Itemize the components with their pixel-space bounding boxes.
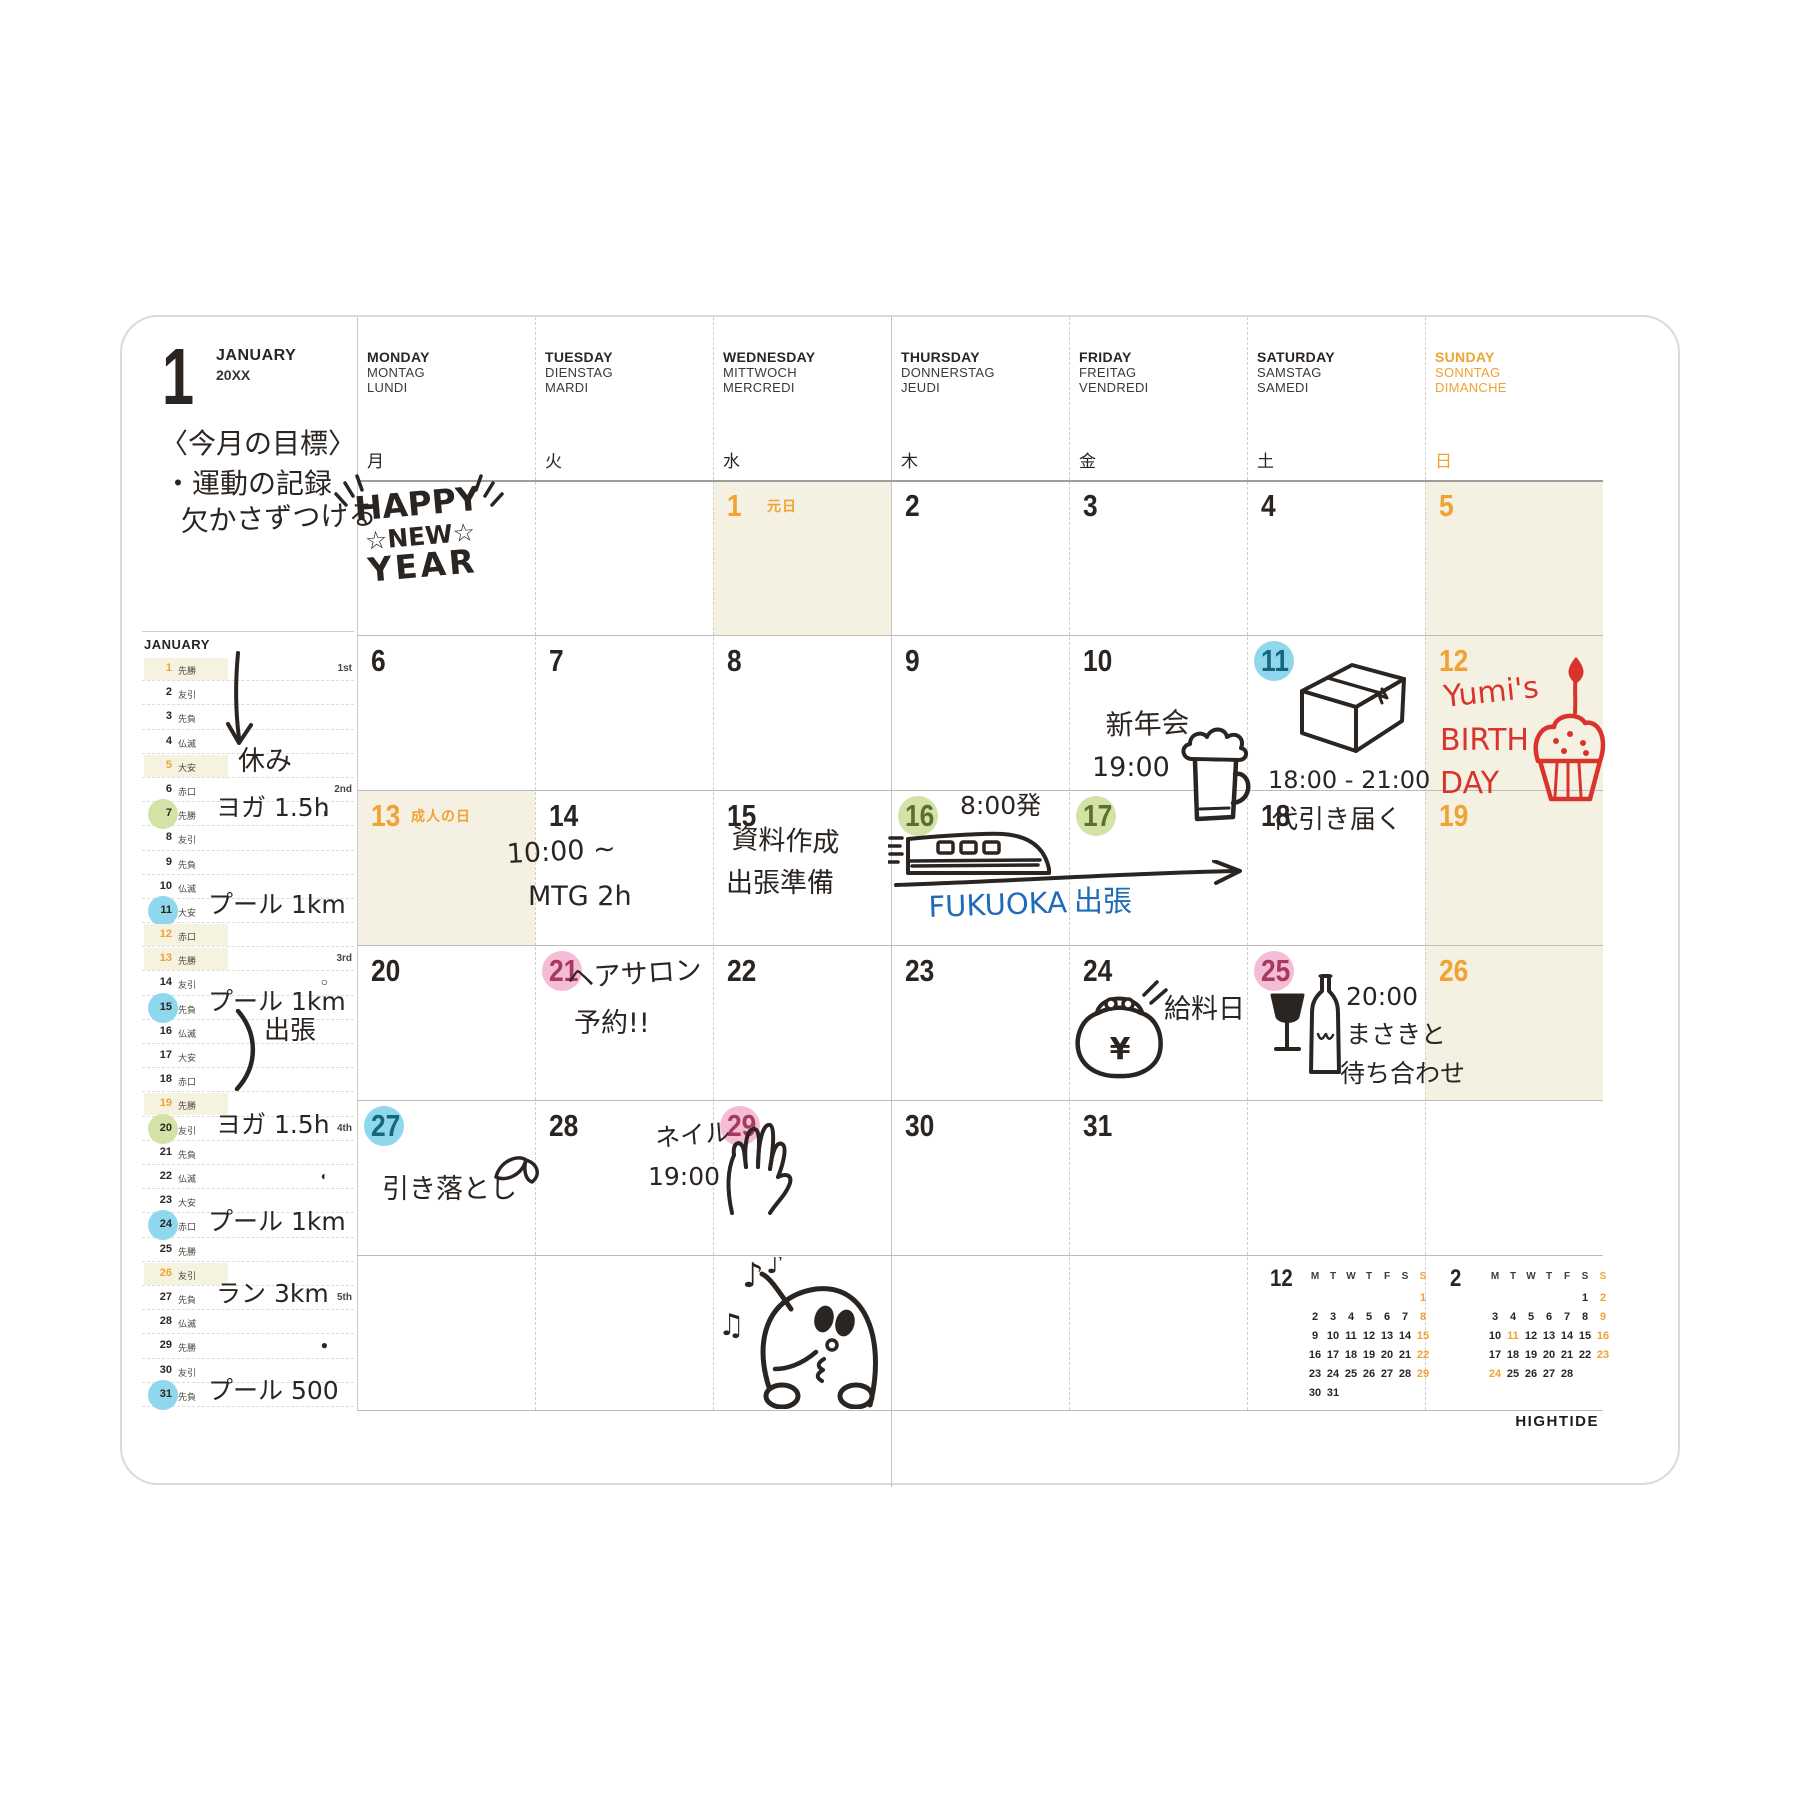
box-doodle [1294,653,1412,761]
sidebar-rokuyo-label: 友引 [178,1269,196,1282]
sidebar-date: 20 [146,1122,172,1134]
calendar-date-6: 6 [371,645,386,676]
sidebar-top-rule [142,631,354,632]
sidebar-date: 30 [146,1364,172,1376]
mini-calendar-date: 5 [1360,1311,1378,1323]
entry-mtg: MTG 2h [528,882,632,912]
calendar-date-10: 10 [1083,645,1112,676]
day-header-kanji: 金 [1079,447,1096,472]
sidebar-month-title: JANUARY [144,637,210,652]
holiday-name-label: 元日 [767,496,797,516]
sidebar-row-jan-9: 9先負 [142,851,354,875]
mini-calendar-date: 23 [1594,1349,1612,1361]
mini-calendar-day-letter: M [1306,1271,1324,1282]
day-header-line: SAMSTAG [1257,365,1427,380]
sidebar-rokuyo-label: 仏滅 [178,1172,196,1185]
sidebar-row-jan-13: 13先勝3rd [142,947,354,971]
sidebar-rokuyo-label: 赤口 [178,1075,196,1088]
sidebar-rokuyo-label: 先勝 [178,954,196,967]
sidebar-rokuyo-label: 先負 [178,1390,196,1403]
sidebar-rokuyo-label: 仏滅 [178,737,196,750]
sidebar-rokuyo-label: 仏滅 [178,1317,196,1330]
svg-text:♪: ♪ [766,1257,784,1280]
sidebar-rokuyo-label: 先負 [178,1003,196,1016]
brand-logo: HIGHTIDE [1515,1413,1599,1430]
sidebar-rokuyo-label: 赤口 [178,785,196,798]
mini-calendar-month-number: 2 [1450,1265,1461,1293]
sidebar-date: 27 [146,1291,172,1303]
entry-fukuoka-trip: 出張 [1074,886,1132,918]
sidebar-date: 25 [146,1243,172,1255]
mini-calendar-date: 22 [1576,1349,1594,1361]
mini-calendar-date: 7 [1396,1311,1414,1323]
sidebar-date: 10 [146,880,172,892]
mini-calendar-day-letter: S [1594,1271,1612,1282]
grid-row-line [357,1255,1603,1256]
note-pool-4: プール 500 [208,1377,339,1405]
mini-calendar-day-letter: F [1378,1271,1396,1282]
sidebar-row-jan-22: 22仏滅◐ [142,1165,354,1189]
sidebar-date: 19 [146,1097,172,1109]
mini-calendar-day-letter: W [1522,1271,1540,1282]
sidebar-date: 11 [146,904,172,916]
mini-calendar-date: 17 [1324,1349,1342,1361]
calendar-date-2: 2 [905,490,920,521]
calendar-date-13: 13 [371,800,400,831]
entry-docs: 資料作成 [731,825,840,858]
planner-page: 1 JANUARY 20XX MONDAYMONTAGLUNDI月TUESDAY… [120,315,1680,1485]
mini-calendar-day-letter: F [1558,1271,1576,1282]
entry-meet-2: 待ち合わせ [1340,1060,1465,1088]
sidebar-rokuyo-label: 先勝 [178,1341,196,1354]
mini-calendar-date: 28 [1396,1368,1414,1380]
sidebar-date: 17 [146,1049,172,1061]
note-pool-1: プール 1km [208,891,346,919]
mini-calendar-date: 1 [1576,1292,1594,1304]
sidebar-date: 29 [146,1339,172,1351]
mini-calendar-date: 29 [1414,1368,1432,1380]
mini-calendar-date: 25 [1504,1368,1522,1380]
mini-calendar-date: 13 [1378,1330,1396,1342]
mini-calendar-day-letter: W [1342,1271,1360,1282]
calendar-date-27: 27 [371,1110,400,1141]
day-header-line: MONDAY [367,350,537,365]
calendar-date-31: 31 [1083,1110,1112,1141]
day-header-friday: FRIDAYFREITAGVENDREDI金 [1079,350,1249,395]
sidebar-date: 14 [146,976,172,988]
bean-doodle [488,1149,546,1189]
goal-line-2: ・運動の記録 [164,469,332,500]
calendar-date-26: 26 [1439,955,1468,986]
sidebar-date: 8 [146,831,172,843]
sidebar-week-marker: 2nd [334,784,352,795]
beer-mug-doodle [1178,719,1256,829]
note-run: ラン 3km [216,1280,329,1308]
entry-newyear-party-time: 19:00 [1092,753,1170,783]
sidebar-row-jan-12: 12赤口 [142,923,354,947]
mini-calendar-date: 10 [1324,1330,1342,1342]
calendar-date-11: 11 [1261,645,1289,676]
sidebar-date: 23 [146,1194,172,1206]
day-header-line: FREITAG [1079,365,1249,380]
sidebar-rokuyo-label: 赤口 [178,930,196,943]
mini-calendar-date: 9 [1306,1330,1324,1342]
calendar-date-14: 14 [549,800,578,831]
calendar-date-28: 28 [549,1110,578,1141]
day-header-kanji: 日 [1435,447,1452,472]
day-header-tuesday: TUESDAYDIENSTAGMARDI火 [545,350,715,395]
calendar-date-30: 30 [905,1110,934,1141]
sidebar-date: 12 [146,928,172,940]
arrow-long-doodle [894,860,1252,892]
sidebar-row-jan-8: 8友引 [142,826,354,850]
calendar-date-9: 9 [905,645,920,676]
day-header-line: VENDREDI [1079,380,1249,395]
mini-calendar-date: 15 [1414,1330,1432,1342]
mini-calendar-date: 19 [1522,1349,1540,1361]
sidebar-rokuyo-label: 先負 [178,1148,196,1161]
day-header-saturday: SATURDAYSAMSTAGSAMEDI土 [1257,350,1427,395]
sidebar-date: 7 [146,807,172,819]
sidebar-date: 6 [146,783,172,795]
mini-calendar-date: 3 [1324,1311,1342,1323]
day-header-thursday: THURSDAYDONNERSTAGJEUDI木 [901,350,1071,395]
mini-calendar-date: 11 [1504,1330,1522,1342]
entry-hairsalon: ヘアサロン [566,956,703,995]
sidebar-date: 1 [146,662,172,674]
mini-calendar-date: 28 [1558,1368,1576,1380]
mini-calendar-date: 22 [1414,1349,1432,1361]
goal-line-1: 〈今月の目標〉 [160,429,356,460]
sidebar-week-marker: 5th [337,1292,352,1303]
mini-calendar-date: 18 [1342,1349,1360,1361]
mini-calendar-date: 23 [1306,1368,1324,1380]
mini-calendar-date: 8 [1414,1311,1432,1323]
mini-calendar-date: 11 [1342,1330,1360,1342]
entry-birthday-2: BIRTH [1440,724,1529,757]
sidebar-date: 9 [146,856,172,868]
purse-doodle: ¥ [1070,979,1170,1079]
sidebar-rokuyo-label: 友引 [178,833,196,846]
calendar-date-5: 5 [1439,490,1454,521]
day-header-line: SATURDAY [1257,350,1427,365]
entry-payday: 給料日 [1164,995,1245,1025]
brace-doodle [232,1009,260,1091]
planner-scan-canvas: 1 JANUARY 20XX MONDAYMONTAGLUNDI月TUESDAY… [0,0,1800,1800]
sidebar-rokuyo-label: 先負 [178,1293,196,1306]
sidebar-date: 22 [146,1170,172,1182]
mini-calendar-date: 12 [1522,1330,1540,1342]
day-header-line: WEDNESDAY [723,350,893,365]
mini-calendar-day-letter: T [1540,1271,1558,1282]
note-yoga-1: ヨガ 1.5h [216,794,330,822]
sidebar-rokuyo-label: 大安 [178,1196,196,1209]
mini-calendar-date: 2 [1594,1292,1612,1304]
day-header-line: SUNDAY [1435,350,1605,365]
sidebar-date: 15 [146,1001,172,1013]
entry-delivery-time: 18:00 - 21:00 [1268,767,1430,793]
mini-calendar-date: 16 [1306,1349,1324,1361]
mini-calendar-month-2: 2MTWTFSS12345678910111213141516171819202… [1450,1269,1615,1411]
mini-calendar-date: 4 [1504,1311,1522,1323]
mini-calendar-day-letter: T [1360,1271,1378,1282]
calendar-date-12: 12 [1439,645,1468,676]
day-header-line: DONNERSTAG [901,365,1071,380]
sidebar-row-jan-25: 25先勝 [142,1238,354,1262]
penguin-doodle: ♪ ♫ ♪ [718,1257,913,1409]
sidebar-rokuyo-label: 大安 [178,1051,196,1064]
sidebar-row-jan-21: 21先負 [142,1141,354,1165]
grid-row-line [357,1100,1603,1101]
note-yoga-2: ヨガ 1.5h [216,1111,330,1139]
svg-text:♪: ♪ [742,1257,764,1296]
sidebar-date: 3 [146,710,172,722]
mini-calendar-day-letter: T [1324,1271,1342,1282]
mini-calendar-date: 30 [1306,1387,1324,1399]
arrow-down-doodle [222,650,258,755]
note-pool-3: プール 1km [208,1208,346,1236]
cupcake-doodle [1526,657,1614,807]
mini-calendar-date: 20 [1378,1349,1396,1361]
mini-calendar-date: 8 [1576,1311,1594,1323]
entry-nail-time: 19:00 [648,1163,720,1191]
mini-calendar-month-number: 12 [1270,1265,1293,1293]
calendar-date-20: 20 [371,955,400,986]
sidebar-row-jan-29: 29先勝● [142,1334,354,1358]
wine-doodle [1268,972,1346,1084]
sidebar-week-marker: 1st [338,663,352,674]
mini-calendar-day-letter: M [1486,1271,1504,1282]
day-header-line: DIENSTAG [545,365,715,380]
day-header-line: DIMANCHE [1435,380,1605,395]
calendar-date-7: 7 [549,645,564,676]
calendar-date-8: 8 [727,645,742,676]
entry-meet-time: 20:00 [1346,983,1418,1011]
day-header-line: LUNDI [367,380,537,395]
sidebar-rokuyo-label: 先勝 [178,664,196,677]
mini-calendar-day-letter: S [1396,1271,1414,1282]
month-name: JANUARY [216,347,296,365]
sidebar-date: 26 [146,1267,172,1279]
sidebar-date: 24 [146,1218,172,1230]
entry-fukuoka: FUKUOKA [928,887,1068,924]
sidebar-rokuyo-label: 大安 [178,761,196,774]
sidebar-rokuyo-label: 先勝 [178,1245,196,1258]
note-pool-2: プール 1km [208,988,346,1016]
sidebar-rokuyo-label: 先負 [178,712,196,725]
entry-hairsalon-2: 予約!! [574,1009,650,1039]
calendar-date-3: 3 [1083,490,1098,521]
day-header-kanji: 木 [901,447,918,472]
mini-calendar-date: 2 [1306,1311,1324,1323]
day-header-line: SONNTAG [1435,365,1605,380]
sidebar-date: 5 [146,759,172,771]
sidebar-date: 18 [146,1073,172,1085]
day-header-line: MERCREDI [723,380,893,395]
mini-calendar-date: 24 [1324,1368,1342,1380]
sidebar-rokuyo-label: 先勝 [178,809,196,822]
year-label: 20XX [216,367,250,383]
mini-calendar-date: 4 [1342,1311,1360,1323]
day-header-line: SAMEDI [1257,380,1427,395]
sidebar-date: 31 [146,1388,172,1400]
mini-calendar-day-letter: S [1414,1271,1432,1282]
day-header-line: THURSDAY [901,350,1071,365]
sidebar-rokuyo-label: 友引 [178,978,196,991]
entry-trip-prep: 出張準備 [726,869,834,899]
holiday-name-label: 成人の日 [411,806,471,826]
sidebar-rokuyo-label: 先勝 [178,1099,196,1112]
mini-calendar-day-letter: T [1504,1271,1522,1282]
sidebar-row-jan-28: 28仏滅 [142,1310,354,1334]
calendar-date-23: 23 [905,955,934,986]
mini-calendar-date: 7 [1558,1311,1576,1323]
svg-text:¥: ¥ [1110,1032,1131,1067]
mini-calendar-date: 24 [1486,1368,1504,1380]
sidebar-date: 2 [146,686,172,698]
mini-calendar-date: 9 [1594,1311,1612,1323]
mini-calendar-date: 15 [1576,1330,1594,1342]
day-header-kanji: 土 [1257,447,1274,472]
sidebar-week-marker: 4th [337,1123,352,1134]
mini-calendar-date: 13 [1540,1330,1558,1342]
mini-calendar-date: 21 [1396,1349,1414,1361]
mini-calendar-date: 27 [1540,1368,1558,1380]
note-holiday: 休み [238,747,292,777]
sidebar-date: 16 [146,1025,172,1037]
mini-calendar-date: 5 [1522,1311,1540,1323]
mini-calendar-month-12: 12MTWTFSS1234567891011121314151617181920… [1270,1269,1435,1411]
mini-calendar-date: 21 [1558,1349,1576,1361]
mini-calendar-date: 6 [1378,1311,1396,1323]
sidebar-rokuyo-label: 友引 [178,688,196,701]
mini-calendar-date: 17 [1486,1349,1504,1361]
grid-row-line [357,635,1603,636]
svg-text:♫: ♫ [718,1308,745,1343]
day-header-sunday: SUNDAYSONNTAGDIMANCHE日 [1435,350,1605,395]
sidebar-date: 21 [146,1146,172,1158]
day-header-line: JEUDI [901,380,1071,395]
entry-birthday-3: DAY [1440,767,1499,800]
mini-calendar-date: 18 [1504,1349,1522,1361]
note-trip: 出張 [264,1017,316,1046]
day-header-line: FRIDAY [1079,350,1249,365]
hand-doodle [718,1111,798,1216]
day-header-kanji: 水 [723,447,740,472]
entry-delivery: 代引き届く [1272,806,1402,835]
happy-new-year-doodle: HAPPY ☆NEW☆ YEAR [332,463,507,588]
mini-calendar-date: 14 [1396,1330,1414,1342]
month-number: 1 [162,337,194,417]
mini-calendar-date: 14 [1558,1330,1576,1342]
sidebar-week-marker: 3rd [336,953,352,964]
mini-calendar-date: 3 [1486,1311,1504,1323]
sidebar-date: 4 [146,735,172,747]
mini-calendar-date: 16 [1594,1330,1612,1342]
sidebar-rokuyo-label: 仏滅 [178,1027,196,1040]
calendar-date-4: 4 [1261,490,1276,521]
day-header-line: MITTWOCH [723,365,893,380]
day-header-monday: MONDAYMONTAGLUNDI月 [367,350,537,395]
day-header-line: MARDI [545,380,715,395]
mini-calendar-date: 6 [1540,1311,1558,1323]
day-header-wednesday: WEDNESDAYMITTWOCHMERCREDI水 [723,350,893,395]
calendar-date-1: 1 [727,490,742,521]
mini-calendar-date: 26 [1360,1368,1378,1380]
mini-calendar-date: 20 [1540,1349,1558,1361]
moon-phase-icon: ◐ [321,1169,328,1183]
mini-calendar-date: 1 [1414,1292,1432,1304]
sidebar-rokuyo-label: 大安 [178,906,196,919]
calendar-date-17: 17 [1083,800,1112,831]
sidebar-rokuyo-label: 友引 [178,1124,196,1137]
mini-calendar-date: 31 [1324,1387,1342,1399]
grid-row-line [357,945,1603,946]
mini-calendar-date: 19 [1360,1349,1378,1361]
sidebar-date: 28 [146,1315,172,1327]
calendar-date-19: 19 [1439,800,1468,831]
sidebar-date: 13 [146,952,172,964]
calendar-date-22: 22 [727,955,756,986]
mini-calendar-date: 10 [1486,1330,1504,1342]
sidebar-rokuyo-label: 友引 [178,1366,196,1379]
mini-calendar-date: 26 [1522,1368,1540,1380]
sidebar-rokuyo-label: 先負 [178,858,196,871]
moon-phase-icon: ● [321,1338,328,1352]
sidebar-rokuyo-label: 仏滅 [178,882,196,895]
mini-calendar-day-letter: S [1576,1271,1594,1282]
sidebar-rokuyo-label: 赤口 [178,1220,196,1233]
mini-calendar-date: 12 [1360,1330,1378,1342]
mini-calendar-date: 27 [1378,1368,1396,1380]
grid-header-rule [357,480,1603,482]
day-header-line: MONTAG [367,365,537,380]
entry-meet-1: まさきと [1346,1021,1446,1049]
day-header-kanji: 火 [545,447,562,472]
day-header-line: TUESDAY [545,350,715,365]
entry-mtg-time: 10:00 ~ [506,834,616,869]
mini-calendar-date: 25 [1342,1368,1360,1380]
